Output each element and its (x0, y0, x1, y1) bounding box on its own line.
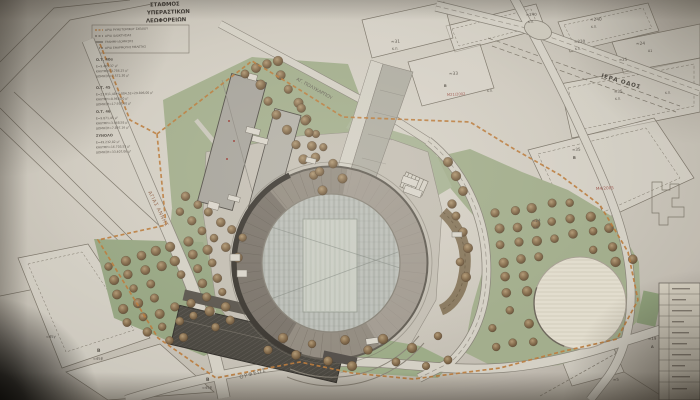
tree (522, 286, 532, 296)
parcel-label: ≈24 (532, 218, 541, 223)
tree (301, 116, 310, 125)
tree (165, 336, 173, 344)
tree (141, 265, 150, 274)
tree (105, 263, 113, 271)
parcel-label: ≈240 (526, 12, 537, 17)
annotation-box (230, 254, 240, 261)
parcel-label: ≈45γ (46, 335, 57, 339)
tree (516, 254, 525, 263)
tree (109, 275, 119, 285)
tree (458, 186, 467, 195)
tree (202, 293, 211, 302)
tree (118, 304, 128, 314)
parcel-label: ≈31 (391, 39, 401, 45)
tree (443, 157, 453, 167)
tree (422, 362, 430, 370)
tree (155, 309, 165, 319)
tree (496, 241, 504, 249)
tree (205, 306, 215, 316)
tree (511, 206, 520, 215)
tree (566, 199, 574, 207)
annotation-box (452, 232, 462, 237)
tree (179, 333, 188, 342)
area-table-line: Ε=9.871,45 μ² (96, 116, 119, 121)
tree (292, 140, 301, 149)
tree (193, 264, 202, 273)
tree (216, 218, 225, 227)
tree (323, 356, 332, 365)
parcel-label: Κ.Π. (615, 97, 621, 101)
tree (532, 236, 542, 246)
area-table-line: ΣΥΝΟΛΟ (96, 133, 113, 138)
tree (489, 324, 497, 332)
tree (548, 199, 557, 208)
area-table-line: Ε=9.465,37 μ² (96, 64, 119, 69)
tree (123, 270, 132, 279)
tree (264, 346, 273, 355)
tree (338, 174, 348, 184)
tree (188, 250, 197, 259)
tree (194, 201, 202, 209)
tree (187, 299, 196, 308)
tree (213, 274, 222, 283)
parcel-label: ≈33 (449, 71, 459, 77)
tree (378, 334, 388, 344)
tree (189, 312, 197, 320)
tree (278, 333, 288, 343)
tree (392, 358, 400, 366)
parcel-label: Α (651, 345, 654, 349)
area-table-line: Ε=49.232,82 μ² (96, 140, 121, 145)
tree (143, 328, 152, 337)
tree (239, 234, 247, 242)
title-block-table (659, 283, 700, 400)
tree (210, 234, 218, 242)
tree (284, 85, 293, 94)
parcel-label: ≈45β (202, 386, 213, 390)
tree (211, 323, 219, 331)
parcel-label: ≈24 (636, 41, 646, 47)
parcel-label: Α1 (648, 49, 652, 53)
tree (204, 208, 213, 217)
area-table-line: Ο.Τ. 40α (96, 57, 114, 62)
tree (501, 272, 510, 281)
tree (491, 209, 500, 218)
tree (123, 318, 132, 327)
tree (513, 223, 522, 232)
tree (444, 356, 452, 364)
tree (608, 242, 617, 251)
tree (461, 272, 471, 282)
tree (151, 246, 161, 256)
tree (305, 128, 314, 137)
tree (137, 251, 146, 260)
tree (524, 319, 533, 328)
tree (282, 125, 292, 135)
parcel-label: Κ.Π. (591, 25, 597, 29)
tree (241, 70, 249, 78)
site-plan-svg: ΑΓΙΑΣ ΑΝΝΗΣ ΑΓ. ΠΟΛΥΚΑΡΠΟΥ ΙΕΡΑ ΟΔΟΣ ΟΡΦ… (0, 0, 700, 400)
tree (147, 280, 155, 288)
tree (158, 323, 166, 331)
tree (184, 237, 194, 247)
parcel-label: Κ.Π. (665, 91, 671, 95)
tree (112, 290, 121, 299)
tree (276, 71, 285, 80)
tree (529, 338, 537, 346)
parcel-label: ≈5 (613, 377, 620, 382)
tree (519, 271, 529, 281)
parcel-label: Β (444, 84, 447, 88)
tree (308, 340, 316, 348)
tree (263, 60, 272, 69)
parcel-label: ≈35 (614, 89, 623, 94)
tree (456, 258, 464, 266)
tree (452, 212, 460, 220)
tree (568, 229, 577, 238)
tree (611, 257, 621, 267)
parcel-label: ≈25 (619, 57, 628, 62)
tree (318, 186, 328, 196)
tree (170, 256, 180, 266)
tree (515, 238, 524, 247)
parcel-label: Κ.Π. (392, 47, 399, 51)
tree (198, 279, 207, 288)
parcel-label: ≈230 (574, 39, 586, 44)
tree (506, 306, 514, 314)
tree (499, 258, 509, 268)
tree (315, 167, 324, 176)
tree (492, 343, 500, 351)
tree (264, 97, 273, 106)
annotation-box (237, 270, 247, 277)
tree (218, 288, 226, 296)
tree (226, 316, 235, 325)
tree (121, 256, 131, 266)
tree (328, 159, 337, 168)
tree (157, 261, 167, 271)
parcel-label: ≈35 (572, 147, 581, 152)
tree (548, 218, 556, 226)
tree (534, 252, 543, 261)
tree (272, 110, 281, 119)
tree (198, 227, 206, 235)
tree (181, 192, 190, 201)
tree (221, 302, 230, 311)
tree (527, 203, 537, 213)
tree (227, 225, 236, 234)
parcel-label: Κ.Π. (533, 226, 539, 230)
tree (203, 245, 213, 255)
tree (297, 104, 306, 113)
tree (150, 294, 159, 303)
tree (448, 200, 457, 209)
tree (165, 242, 175, 252)
parcel-label: Β (573, 155, 576, 160)
tree (176, 317, 184, 325)
tree (463, 243, 473, 253)
tree (273, 56, 283, 66)
tree (434, 332, 442, 340)
tree (177, 271, 185, 279)
tree (407, 343, 417, 353)
parcel-label: ≈19 (648, 336, 657, 341)
tree (187, 216, 196, 225)
tree (340, 335, 349, 344)
parcel-label: ≈240 (590, 17, 602, 23)
tree (451, 171, 461, 181)
tree (502, 288, 511, 297)
parcel-label: Κ.Π. (575, 47, 581, 51)
tree (347, 361, 357, 371)
tree (176, 208, 184, 216)
tree (130, 285, 138, 293)
tree (589, 227, 597, 235)
parcel-label: Κ.Π. (528, 20, 534, 24)
title-line-1: ΣΤΑΘΜΟΣ (150, 1, 180, 8)
parcel-label: ≈45β (93, 357, 104, 361)
tree (291, 350, 300, 359)
tree (550, 235, 558, 243)
tree (307, 141, 316, 150)
tree (364, 346, 373, 355)
tree (256, 80, 266, 90)
parcel-label: Μ4/2005 (596, 185, 615, 191)
tree (208, 259, 216, 267)
tree (589, 246, 597, 254)
area-table-line: Ο.Τ. 46 (96, 109, 111, 114)
tree (586, 212, 596, 222)
tree (495, 224, 505, 234)
site-plan-photo: ΑΓΙΑΣ ΑΝΝΗΣ ΑΓ. ΠΟΛΥΚΑΡΠΟΥ ΙΕΡΑ ΟΔΟΣ ΟΡΦ… (0, 0, 700, 400)
area-table-line: Ο.Τ. 45 (96, 85, 111, 90)
parcel-label: Κ.Π. (487, 89, 493, 93)
tree (170, 303, 179, 312)
tree (319, 143, 327, 151)
tree (221, 243, 230, 252)
tree (509, 339, 517, 347)
tree (566, 214, 575, 223)
